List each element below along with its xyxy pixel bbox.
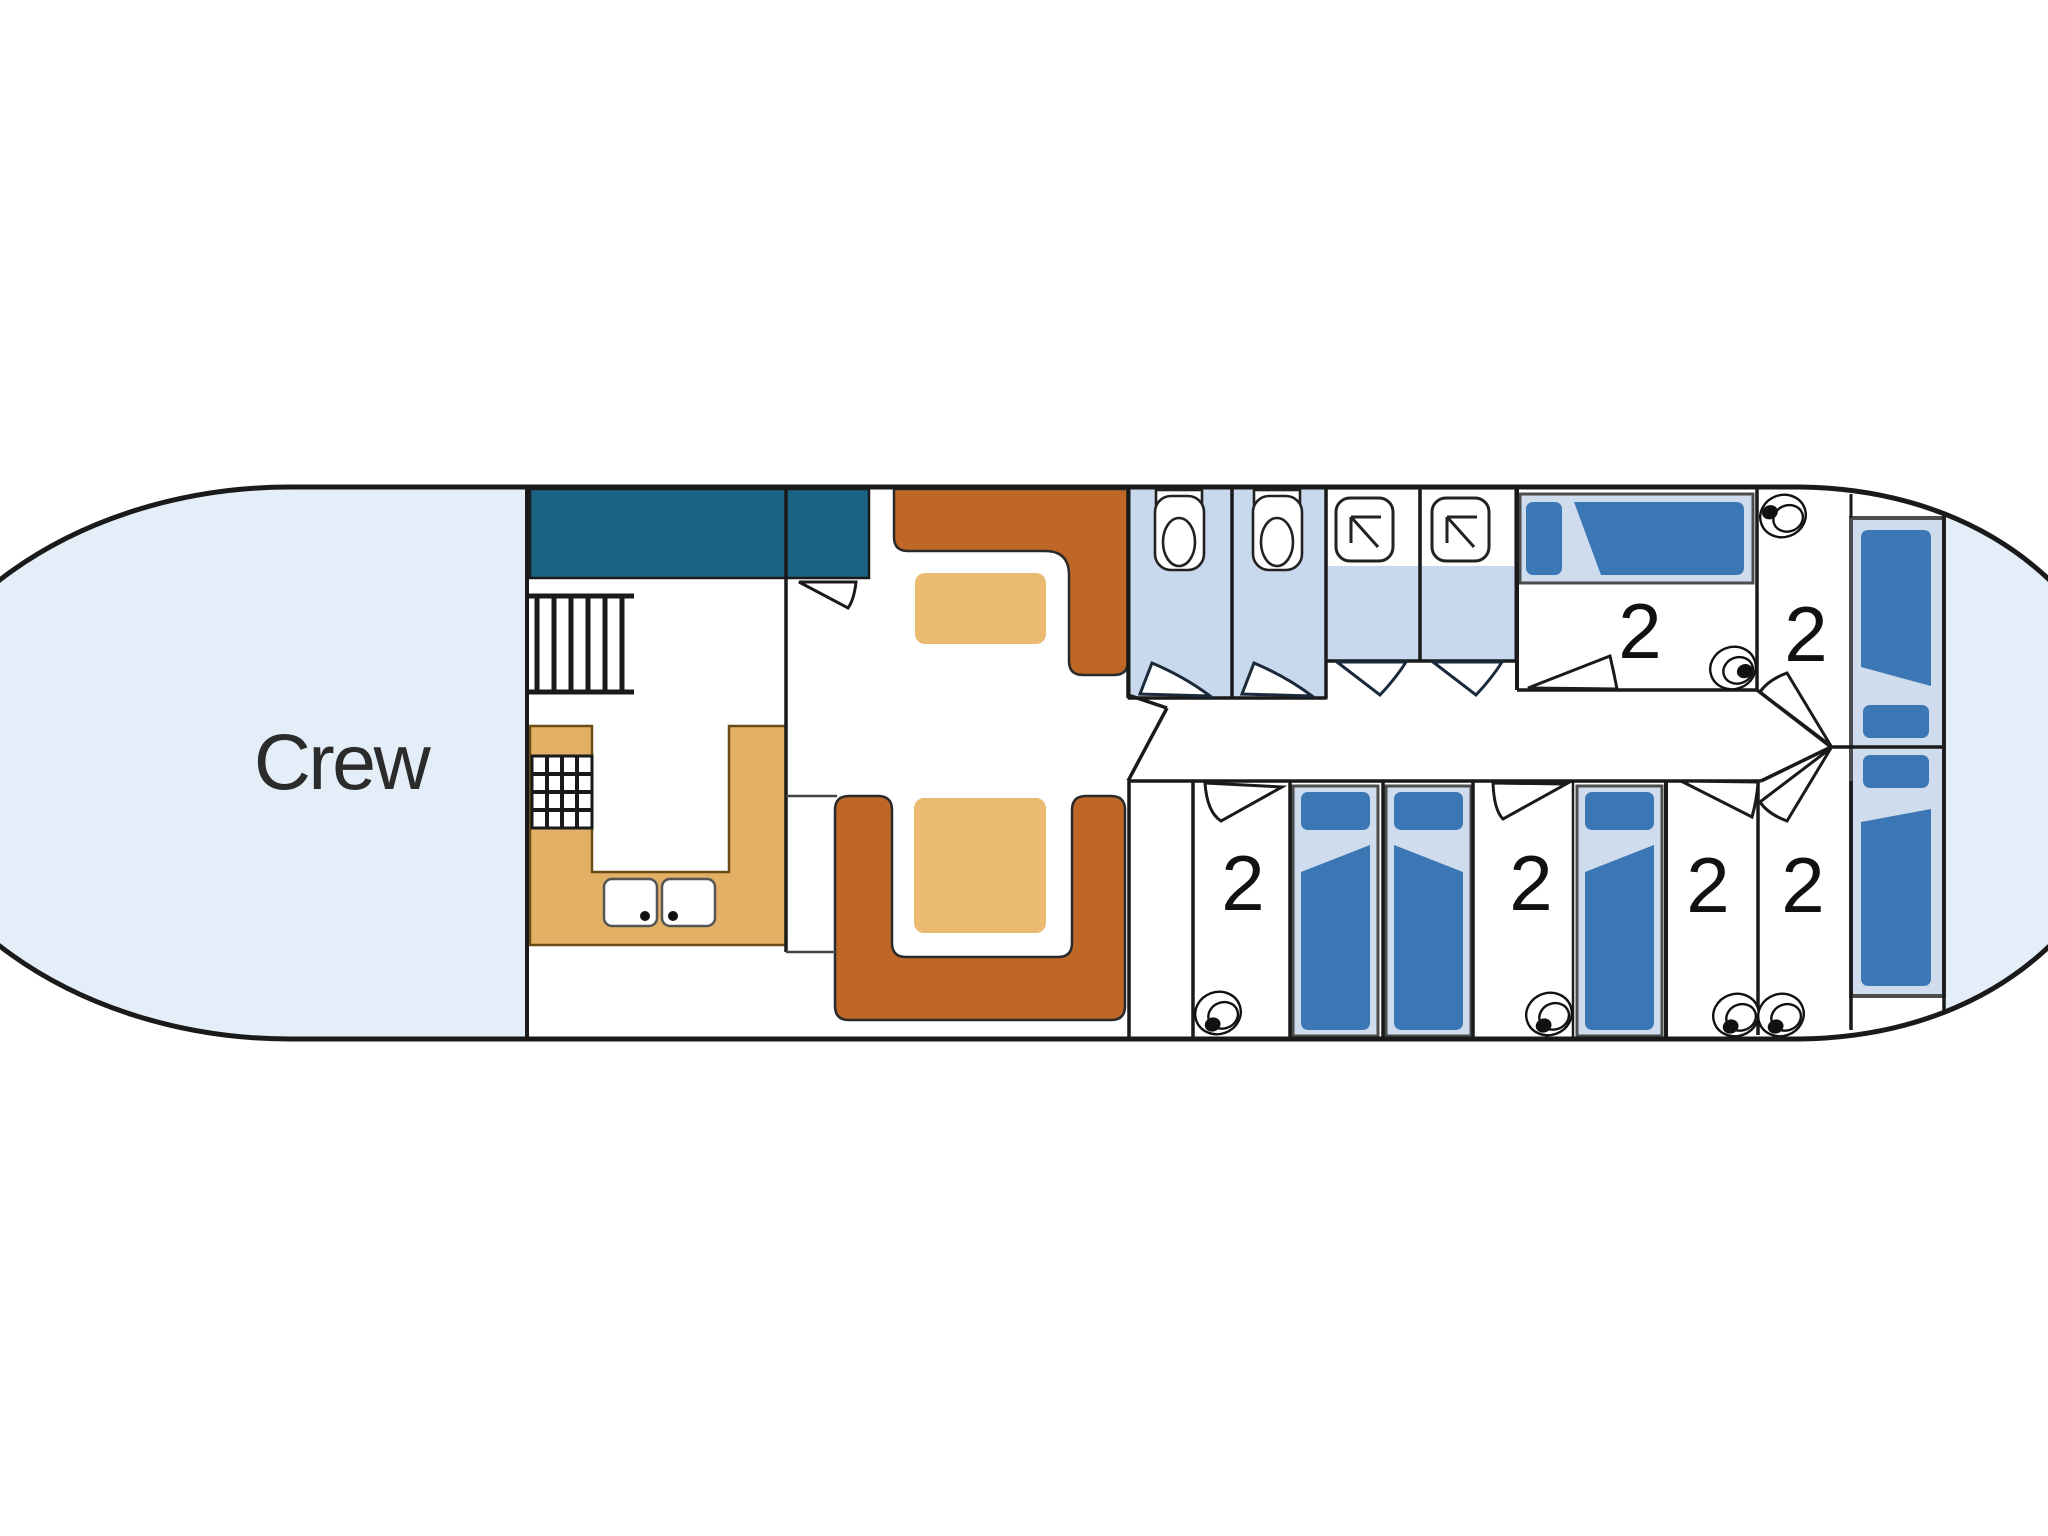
svg-text:2: 2 <box>1221 839 1264 927</box>
svg-text:2: 2 <box>1686 841 1729 929</box>
svg-text:2: 2 <box>1509 839 1552 927</box>
svg-text:Crew: Crew <box>254 717 432 806</box>
svg-text:2: 2 <box>1781 841 1824 929</box>
svg-text:2: 2 <box>1618 587 1661 675</box>
svg-text:2: 2 <box>1784 590 1827 678</box>
